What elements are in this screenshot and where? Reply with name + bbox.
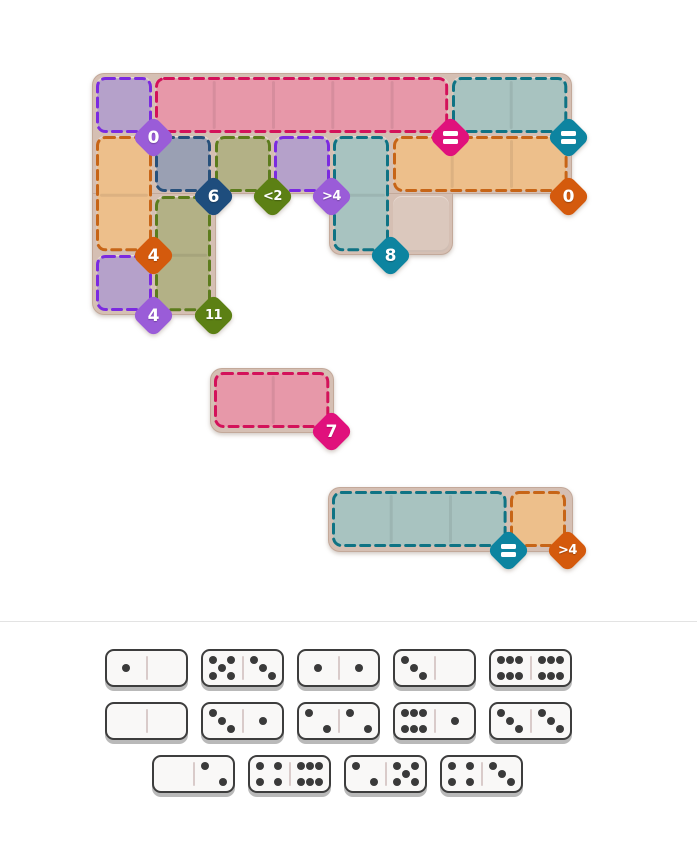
badge-label: >4: [552, 535, 583, 566]
pip: [306, 762, 314, 770]
pip: [448, 762, 456, 770]
pip: [219, 778, 227, 786]
domino-half-left: [395, 651, 434, 685]
pip: [401, 709, 409, 717]
domino-2-5[interactable]: [344, 755, 427, 793]
domino-half-right: [244, 704, 283, 738]
domino-half-right: [436, 651, 475, 685]
pip: [451, 717, 459, 725]
pip: [515, 656, 523, 664]
domino-half-left: [203, 651, 242, 685]
pip: [506, 672, 514, 680]
domino-3-1[interactable]: [201, 702, 284, 740]
pip: [227, 725, 235, 733]
pip: [489, 762, 497, 770]
domino-half-right: [532, 651, 571, 685]
domino-half-left: [107, 704, 146, 738]
pip: [506, 717, 514, 725]
equals-bar: [501, 552, 516, 557]
pip: [497, 656, 505, 664]
pip: [315, 762, 323, 770]
domino-2-2[interactable]: [297, 702, 380, 740]
domino-3-3[interactable]: [489, 702, 572, 740]
pip: [506, 656, 514, 664]
domino-half-left: [154, 757, 193, 791]
pip: [355, 664, 363, 672]
equals-icon: [493, 535, 524, 566]
pip: [547, 656, 555, 664]
pip: [466, 762, 474, 770]
domino-half-right: [148, 651, 187, 685]
pip: [401, 725, 409, 733]
pip: [352, 762, 360, 770]
pip: [209, 709, 217, 717]
pip: [547, 717, 555, 725]
pip: [297, 762, 305, 770]
section-divider: [0, 621, 697, 622]
domino-half-right: [291, 757, 330, 791]
pip: [227, 672, 235, 680]
pip: [306, 778, 314, 786]
pip: [556, 656, 564, 664]
pip: [402, 770, 410, 778]
pip: [259, 664, 267, 672]
domino-1-1[interactable]: [297, 649, 380, 687]
badge-gt4-orange: >4: [545, 528, 589, 572]
pip: [297, 778, 305, 786]
pip: [498, 770, 506, 778]
pip: [556, 672, 564, 680]
domino-half-right: [244, 651, 283, 685]
pip: [364, 725, 372, 733]
pip: [410, 725, 418, 733]
pip: [419, 725, 427, 733]
pip: [209, 672, 217, 680]
domino-half-right: [483, 757, 522, 791]
pip: [538, 709, 546, 717]
domino-0-0[interactable]: [105, 702, 188, 740]
pip: [393, 762, 401, 770]
pip: [466, 778, 474, 786]
pip: [314, 664, 322, 672]
equals-bars: [501, 544, 516, 557]
pip: [419, 709, 427, 717]
badge-equals-teal-2: [486, 528, 530, 572]
pip: [507, 778, 515, 786]
pip: [250, 656, 258, 664]
domino-4-3[interactable]: [440, 755, 523, 793]
domino-0-2[interactable]: [152, 755, 235, 793]
domino-half-left: [250, 757, 289, 791]
domino-3-0[interactable]: [393, 649, 476, 687]
pip: [515, 672, 523, 680]
domino-half-left: [299, 651, 338, 685]
pip: [218, 717, 226, 725]
pip: [515, 725, 523, 733]
domino-half-left: [299, 704, 338, 738]
pip: [448, 778, 456, 786]
domino-half-right: [195, 757, 234, 791]
pip: [122, 664, 130, 672]
domino-5-3[interactable]: [201, 649, 284, 687]
pip: [401, 656, 409, 664]
domino-4-6[interactable]: [248, 755, 331, 793]
pip: [547, 672, 555, 680]
domino-half-left: [395, 704, 434, 738]
pip: [370, 778, 378, 786]
pip: [419, 672, 427, 680]
domino-half-right: [148, 704, 187, 738]
pip: [556, 725, 564, 733]
pip: [411, 762, 419, 770]
pip: [201, 762, 209, 770]
pip: [218, 664, 226, 672]
pip: [268, 672, 276, 680]
pip: [274, 778, 282, 786]
domino-half-left: [203, 704, 242, 738]
pip: [209, 656, 217, 664]
pip: [256, 778, 264, 786]
domino-half-left: [491, 704, 530, 738]
domino-1-0[interactable]: [105, 649, 188, 687]
pip: [411, 778, 419, 786]
pip: [538, 672, 546, 680]
domino-half-right: [436, 704, 475, 738]
pip: [538, 656, 546, 664]
pip: [256, 762, 264, 770]
pip: [315, 778, 323, 786]
domino-half-left: [491, 651, 530, 685]
domino-half-right: [532, 704, 571, 738]
pip: [393, 778, 401, 786]
pip: [346, 709, 354, 717]
pip: [305, 709, 313, 717]
pip: [227, 656, 235, 664]
piece-teal-orange-region-teal: [332, 491, 507, 547]
domino-half-left: [346, 757, 385, 791]
pip: [410, 664, 418, 672]
domino-half-right: [340, 704, 379, 738]
pip: [274, 762, 282, 770]
pip: [497, 672, 505, 680]
equals-bar: [501, 544, 516, 549]
domino-6-6[interactable]: [489, 649, 572, 687]
puzzle-screen: 06<2>4048411 7>4: [0, 0, 697, 847]
domino-half-right: [340, 651, 379, 685]
domino-half-left: [107, 651, 146, 685]
pip: [497, 709, 505, 717]
domino-half-left: [442, 757, 481, 791]
pip: [410, 709, 418, 717]
pip: [323, 725, 331, 733]
domino-6-1[interactable]: [393, 702, 476, 740]
domino-half-right: [387, 757, 426, 791]
pip: [259, 717, 267, 725]
